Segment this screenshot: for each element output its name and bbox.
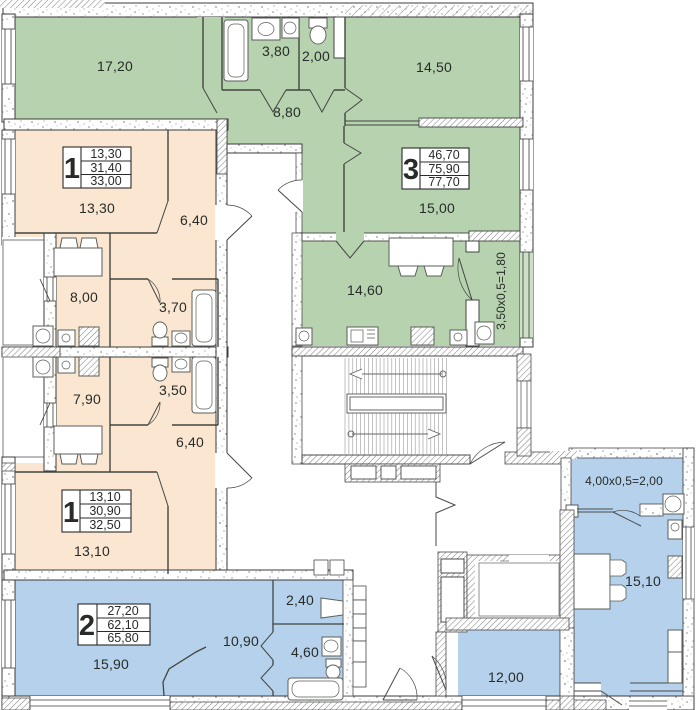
svg-text:6,40: 6,40 <box>180 212 208 228</box>
svg-text:15,10: 15,10 <box>625 573 661 589</box>
svg-text:1: 1 <box>63 497 79 529</box>
svg-text:33,00: 33,00 <box>90 174 121 188</box>
svg-text:77,70: 77,70 <box>428 175 459 189</box>
svg-text:17,20: 17,20 <box>97 58 133 74</box>
svg-text:8,00: 8,00 <box>70 289 98 305</box>
svg-text:8,80: 8,80 <box>273 104 301 120</box>
svg-text:3: 3 <box>403 154 419 186</box>
svg-text:14,60: 14,60 <box>347 282 383 298</box>
svg-text:13,10: 13,10 <box>74 543 110 559</box>
svg-text:75,90: 75,90 <box>428 162 459 176</box>
svg-text:15,90: 15,90 <box>93 656 129 672</box>
svg-text:3,50x0,5=1,80: 3,50x0,5=1,80 <box>494 252 508 330</box>
svg-text:14,50: 14,50 <box>416 59 452 75</box>
svg-text:13,10: 13,10 <box>89 490 120 504</box>
svg-text:3,80: 3,80 <box>262 43 290 59</box>
svg-text:31,40: 31,40 <box>90 161 121 175</box>
svg-text:65,80: 65,80 <box>107 631 138 645</box>
svg-text:30,90: 30,90 <box>89 504 120 518</box>
svg-text:46,70: 46,70 <box>428 148 459 162</box>
svg-text:2: 2 <box>79 610 95 642</box>
svg-text:10,90: 10,90 <box>223 633 259 649</box>
svg-text:32,50: 32,50 <box>89 518 120 532</box>
svg-text:3,50: 3,50 <box>159 382 187 398</box>
svg-text:2,40: 2,40 <box>286 592 314 608</box>
svg-text:7,90: 7,90 <box>73 391 101 407</box>
svg-text:62,10: 62,10 <box>107 618 138 632</box>
svg-text:3,70: 3,70 <box>159 299 187 315</box>
svg-text:4,00x0,5=2,00: 4,00x0,5=2,00 <box>585 474 663 488</box>
svg-text:13,30: 13,30 <box>79 200 115 216</box>
svg-text:4,60: 4,60 <box>291 644 319 660</box>
svg-text:15,00: 15,00 <box>419 200 455 216</box>
svg-text:13,30: 13,30 <box>90 147 121 161</box>
svg-text:6,40: 6,40 <box>176 434 204 450</box>
svg-text:12,00: 12,00 <box>488 669 524 685</box>
svg-text:2,00: 2,00 <box>302 48 330 64</box>
svg-text:27,20: 27,20 <box>107 604 138 618</box>
svg-text:1: 1 <box>64 153 80 185</box>
